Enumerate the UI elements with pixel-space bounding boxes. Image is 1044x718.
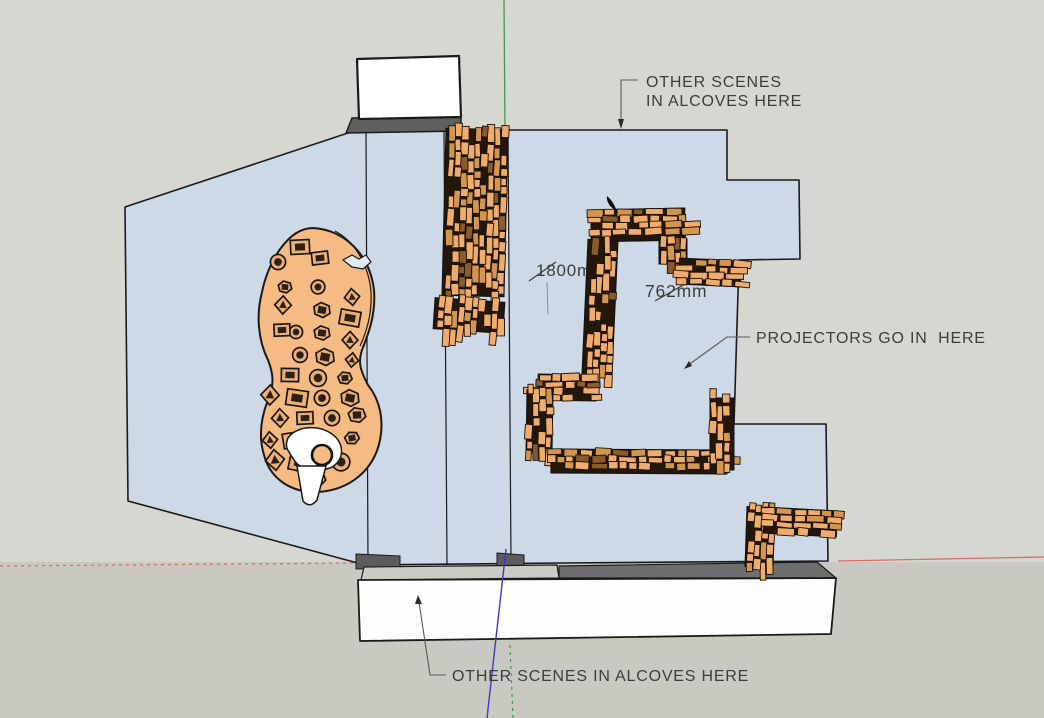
brick — [479, 198, 486, 210]
prop-object[interactable] — [324, 410, 340, 426]
brick — [722, 405, 730, 416]
brick — [459, 234, 465, 248]
brick — [797, 527, 809, 536]
prop-object[interactable] — [339, 309, 361, 327]
annotation-alcoves-top-line1[interactable]: OTHER SCENES — [646, 74, 782, 91]
prop-object[interactable] — [314, 390, 330, 406]
brick — [620, 215, 631, 223]
brick — [716, 460, 724, 474]
brick — [609, 292, 617, 300]
brick — [648, 457, 662, 463]
brick — [667, 245, 675, 260]
brick — [612, 229, 625, 235]
brick — [591, 394, 602, 400]
brick — [464, 262, 472, 277]
brick — [539, 447, 546, 462]
brick — [746, 562, 752, 571]
brick — [565, 461, 574, 468]
brick — [602, 215, 618, 222]
brick — [460, 188, 468, 197]
brick — [479, 267, 486, 283]
brick — [487, 192, 495, 207]
brick — [486, 237, 492, 254]
prop-object[interactable] — [292, 347, 308, 363]
annotation-projectors[interactable]: PROJECTORS GO IN HERE — [756, 330, 986, 347]
brick — [717, 423, 723, 440]
white-box[interactable] — [346, 56, 461, 133]
brick — [747, 512, 755, 522]
brick — [601, 333, 608, 341]
prop-object[interactable] — [289, 325, 303, 339]
brick — [760, 542, 767, 560]
brick — [592, 455, 606, 464]
brick — [552, 373, 561, 381]
prop-object[interactable] — [270, 254, 286, 270]
brick — [575, 461, 589, 469]
brick — [667, 236, 675, 244]
brick — [813, 522, 829, 529]
brick — [479, 211, 487, 222]
brick — [472, 200, 479, 214]
annotation-alcoves-bottom[interactable]: OTHER SCENES IN ALCOVES HERE — [452, 668, 749, 685]
brick — [780, 515, 792, 522]
brick — [446, 208, 454, 226]
brick — [604, 236, 610, 254]
brick-wall-segment[interactable] — [761, 507, 844, 538]
brick — [587, 210, 603, 218]
brick — [807, 515, 825, 522]
brick — [539, 375, 551, 381]
brick — [553, 387, 563, 396]
brick — [820, 529, 836, 538]
brick — [460, 199, 467, 206]
brick — [589, 307, 596, 321]
brick — [459, 295, 466, 304]
prop-object[interactable] — [290, 239, 310, 254]
brick — [546, 407, 554, 415]
brick — [766, 557, 773, 574]
brick — [501, 168, 508, 176]
round-prop[interactable] — [312, 445, 332, 465]
brick — [594, 349, 600, 357]
brick — [482, 126, 489, 137]
brick — [539, 387, 546, 396]
brick — [533, 418, 540, 426]
brick — [533, 444, 539, 461]
brick — [437, 320, 444, 328]
brick — [451, 283, 459, 295]
brick — [454, 167, 462, 178]
brick — [665, 463, 675, 469]
brick — [753, 558, 761, 570]
brick — [449, 143, 455, 158]
brick — [603, 273, 610, 291]
brick — [592, 463, 608, 469]
brick — [730, 267, 747, 274]
brick — [705, 279, 720, 287]
brick — [473, 216, 479, 229]
brick — [754, 530, 762, 542]
brick — [724, 463, 730, 472]
brick — [591, 279, 597, 293]
brick — [586, 333, 595, 348]
brick — [638, 462, 650, 470]
brick — [437, 310, 444, 319]
brick — [596, 263, 604, 275]
brick — [459, 223, 465, 233]
brick — [495, 128, 501, 146]
brick-wall-segment[interactable] — [709, 389, 734, 475]
brick — [665, 228, 680, 235]
brick — [497, 318, 505, 336]
platform-front-face[interactable] — [358, 578, 836, 641]
prop-object[interactable] — [309, 369, 327, 387]
brick — [706, 266, 716, 273]
brick — [629, 463, 637, 470]
brick — [581, 374, 598, 382]
brick — [562, 394, 573, 401]
brick — [604, 209, 614, 215]
brick — [719, 259, 731, 266]
brick — [460, 207, 467, 221]
brick-wall-segment[interactable] — [582, 236, 618, 388]
brick — [498, 254, 505, 271]
brick — [722, 394, 730, 403]
platform-top-light — [361, 565, 559, 580]
brick — [746, 553, 753, 561]
brick — [664, 455, 672, 463]
brick — [528, 384, 533, 394]
brick — [768, 533, 775, 543]
brick — [525, 450, 531, 461]
brick — [749, 503, 756, 511]
brick — [605, 256, 612, 270]
brick — [747, 541, 755, 553]
brick — [479, 235, 485, 247]
prop-object[interactable] — [311, 280, 326, 295]
brick — [660, 236, 667, 248]
brick — [829, 523, 842, 530]
brick — [501, 178, 507, 185]
brick — [645, 209, 663, 215]
prop-object[interactable] — [281, 368, 298, 381]
brick — [619, 462, 627, 469]
brick — [479, 249, 486, 264]
brick — [489, 331, 497, 345]
brick — [545, 382, 563, 388]
brick — [680, 238, 687, 250]
brick — [494, 178, 501, 192]
brick — [587, 351, 593, 368]
prop-object[interactable] — [278, 281, 292, 293]
brick — [547, 455, 555, 463]
brick — [524, 424, 532, 439]
brick — [647, 450, 662, 457]
brick — [494, 148, 500, 159]
brick — [465, 226, 473, 240]
brick — [660, 250, 667, 264]
brick — [500, 197, 507, 214]
brick — [476, 128, 482, 142]
brick — [588, 217, 601, 222]
white-box-face[interactable] — [357, 56, 461, 119]
prop-object[interactable] — [286, 389, 309, 408]
brick — [501, 155, 507, 166]
brick — [674, 456, 686, 462]
brick — [709, 420, 717, 434]
brick — [533, 404, 539, 417]
brick — [724, 442, 730, 452]
brick — [561, 373, 579, 382]
brick — [609, 461, 619, 468]
brick — [448, 159, 455, 177]
annotation-alcoves-top-line2[interactable]: IN ALCOVES HERE — [646, 93, 802, 110]
brick-wall-segment[interactable] — [673, 258, 752, 288]
scene-canvas[interactable]: 1800mm 762mm OTHER SCENES IN ALCOVES HER… — [0, 0, 1044, 718]
brick — [600, 342, 608, 351]
brick — [442, 328, 450, 346]
brick — [445, 229, 453, 246]
prop-object[interactable] — [274, 324, 290, 336]
brick — [444, 315, 452, 325]
brick — [602, 222, 613, 229]
brick — [726, 274, 744, 280]
brick — [501, 125, 509, 137]
brick — [717, 406, 723, 422]
prop-object[interactable] — [311, 251, 329, 265]
brick — [665, 220, 682, 228]
brick — [681, 227, 699, 236]
brick — [438, 295, 446, 308]
brick — [673, 270, 689, 279]
brick — [449, 126, 456, 141]
brick — [488, 175, 494, 190]
brick — [710, 389, 717, 399]
brick — [462, 126, 470, 140]
brick — [466, 278, 473, 287]
brick — [600, 354, 607, 363]
brick-wall-segment[interactable] — [442, 123, 509, 308]
brick — [722, 279, 733, 287]
brick — [557, 456, 565, 462]
brick — [472, 308, 478, 318]
brick — [795, 516, 806, 522]
brick — [601, 324, 607, 331]
brick — [715, 443, 723, 459]
brick — [500, 186, 507, 194]
brick — [546, 418, 553, 435]
brick — [474, 171, 481, 179]
brick — [472, 265, 480, 283]
brick — [686, 456, 695, 462]
brick — [486, 223, 494, 237]
brick — [628, 229, 641, 236]
brick — [445, 275, 451, 289]
brick — [455, 151, 462, 165]
brick — [776, 508, 792, 515]
brick — [459, 251, 467, 264]
brick — [527, 441, 533, 449]
brick — [777, 528, 795, 537]
brick — [695, 260, 707, 267]
brick — [493, 160, 501, 177]
brick — [589, 229, 600, 236]
brick — [723, 432, 731, 442]
brick — [591, 237, 600, 255]
brick — [565, 381, 574, 388]
brick — [499, 231, 506, 239]
brick — [538, 431, 546, 444]
brick — [587, 382, 600, 388]
brick — [454, 223, 460, 232]
brick — [639, 222, 649, 228]
brick — [708, 259, 717, 265]
brick — [493, 238, 499, 248]
brick — [485, 272, 492, 288]
brick — [493, 249, 499, 260]
brick — [451, 264, 459, 281]
brick — [634, 209, 643, 215]
brick — [458, 306, 465, 322]
brick — [710, 402, 717, 418]
brick — [687, 463, 700, 470]
brick — [484, 314, 491, 326]
brick — [631, 449, 646, 457]
brick — [452, 251, 459, 262]
brick — [480, 153, 488, 167]
brick — [464, 324, 470, 337]
brick — [735, 281, 750, 288]
brick — [492, 298, 500, 312]
modeling-viewport[interactable]: 1800mm 762mm OTHER SCENES IN ALCOVES HER… — [0, 0, 1044, 718]
brick — [761, 519, 773, 526]
brick — [666, 208, 681, 215]
brick — [548, 449, 562, 455]
brick — [602, 294, 609, 304]
brick — [448, 196, 453, 208]
brick — [724, 454, 730, 462]
brick — [491, 313, 497, 329]
prop-object[interactable] — [297, 412, 314, 425]
brick — [676, 278, 687, 285]
brick — [644, 227, 662, 236]
brick — [459, 277, 466, 288]
brick — [677, 463, 686, 471]
brick — [690, 278, 703, 284]
brick — [588, 295, 595, 305]
